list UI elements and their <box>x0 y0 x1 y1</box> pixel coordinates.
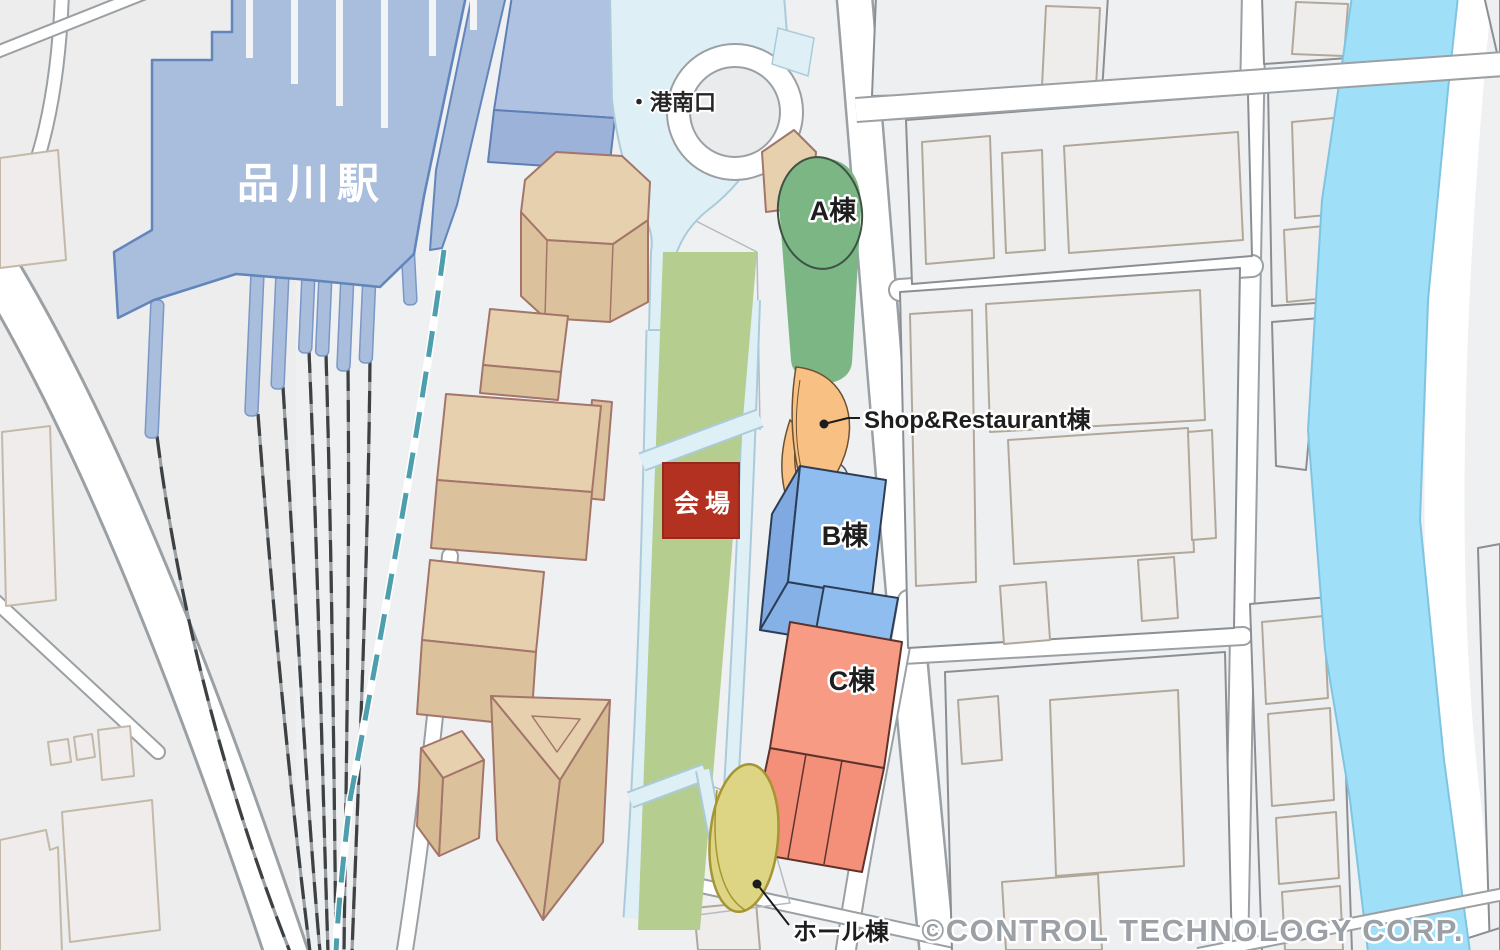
hall-label: ホール棟 <box>793 919 890 946</box>
area-map: 品川駅 会場 <box>0 0 1500 950</box>
tower-large <box>437 394 601 492</box>
tower-mid <box>422 560 544 652</box>
building-a-label: A棟 <box>810 196 857 226</box>
konan-exit-label: ・港南口 <box>628 90 716 115</box>
tower-box <box>483 309 568 372</box>
shop-restaurant-label: Shop&Restaurant棟 <box>864 407 1092 434</box>
building-c-label: C棟 <box>829 666 876 696</box>
station-label: 品川駅 <box>237 160 387 207</box>
copyright-text: ©CONTROL TECHNOLOGY CORP. <box>921 913 1464 948</box>
venue-label: 会場 <box>674 490 736 518</box>
tower-octagon-top <box>521 152 650 244</box>
building-b-label: B棟 <box>822 521 869 551</box>
venue-marker: 会場 <box>663 463 739 538</box>
